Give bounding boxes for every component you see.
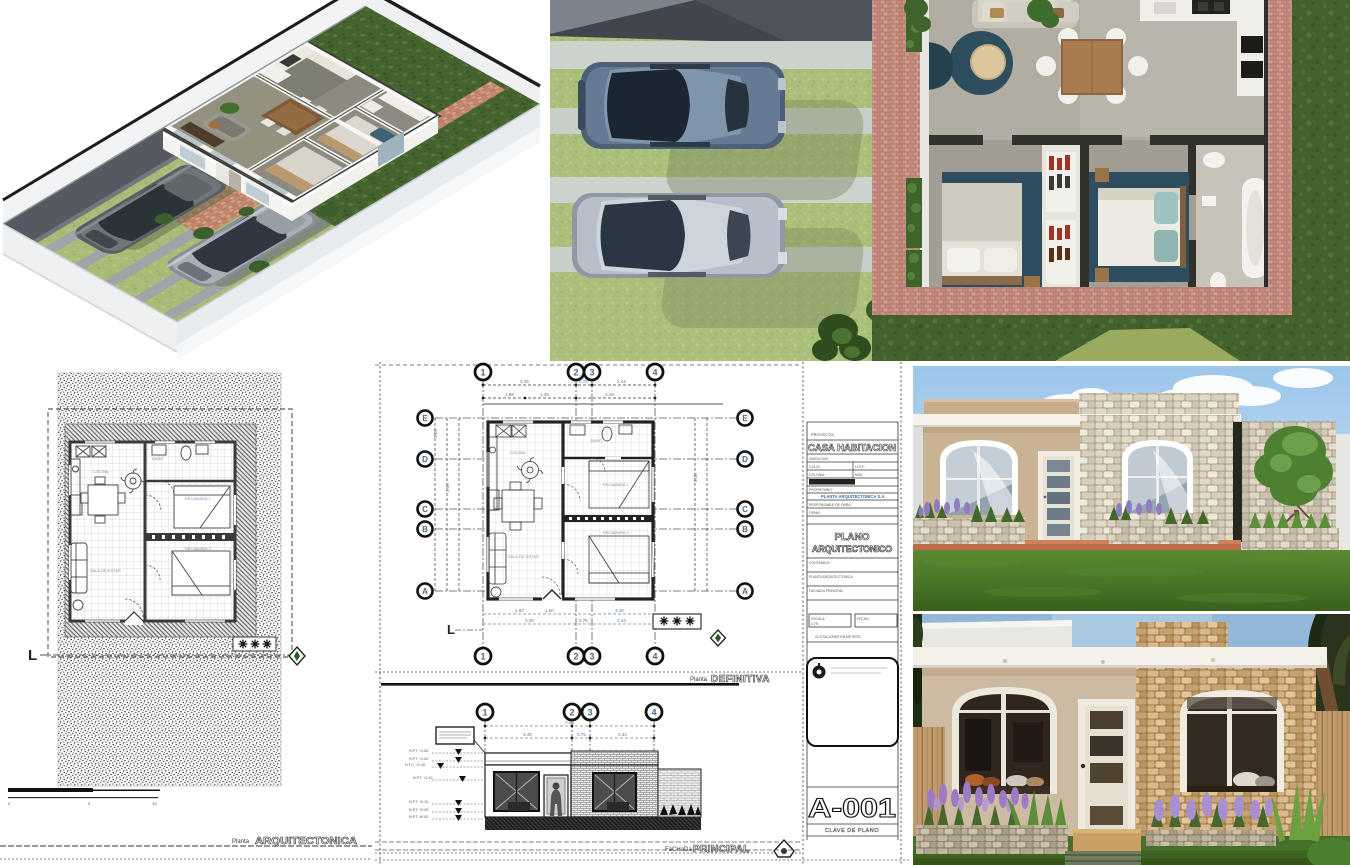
svg-text:L: L: [447, 622, 455, 637]
svg-text:SALA DE ESTAR: SALA DE ESTAR: [90, 568, 121, 573]
svg-text:3: 3: [587, 708, 592, 718]
svg-text:A: A: [742, 587, 748, 596]
svg-text:D: D: [422, 455, 428, 464]
svg-text:1.50: 1.50: [545, 608, 554, 613]
svg-text:A: A: [422, 587, 428, 596]
svg-text:N.T.C. +2.40: N.T.C. +2.40: [405, 763, 425, 767]
svg-text:3: 3: [589, 652, 594, 662]
svg-text:2: 2: [573, 368, 578, 378]
svg-text:1: 1: [480, 652, 485, 662]
svg-text:FACHADA PRINCIPAL: FACHADA PRINCIPAL: [809, 589, 844, 593]
svg-text:2: 2: [573, 652, 578, 662]
svg-text:BAÑO: BAÑO: [591, 438, 602, 443]
svg-text:Planta: Planta: [232, 839, 250, 845]
svg-text:N.P.T. +2.80: N.P.T. +2.80: [409, 749, 428, 753]
svg-text:CALLE:: CALLE:: [809, 465, 821, 469]
svg-text:1:75: 1:75: [811, 622, 818, 626]
svg-text:Planta: Planta: [690, 677, 708, 683]
svg-text:N.P.T. ±0.00: N.P.T. ±0.00: [409, 815, 428, 819]
svg-text:MZA:: MZA:: [855, 473, 863, 477]
svg-text:3.28: 3.28: [433, 429, 438, 438]
svg-text:UBICACION:: UBICACION:: [809, 457, 829, 461]
svg-text:1.93: 1.93: [515, 608, 524, 613]
svg-text:FECHA:: FECHA:: [857, 617, 869, 621]
svg-text:N.P.T. +0.05: N.P.T. +0.05: [409, 808, 428, 812]
svg-text:2.08: 2.08: [445, 483, 450, 492]
svg-text:LOTE:: LOTE:: [855, 465, 865, 469]
svg-text:C: C: [422, 505, 428, 514]
svg-text:RECAMARA 2: RECAMARA 2: [185, 546, 212, 551]
svg-text:RECAMARA 1: RECAMARA 1: [603, 482, 630, 487]
svg-text:RESPONSABLE DE OBRA:: RESPONSABLE DE OBRA:: [809, 503, 851, 507]
svg-text:B: B: [742, 525, 748, 534]
svg-text:1.38: 1.38: [540, 392, 549, 397]
svg-text:RECAMARA 2: RECAMARA 2: [603, 530, 630, 535]
svg-text:PLANTA ARQUITECTONICA: PLANTA ARQUITECTONICA: [809, 575, 854, 579]
svg-text:CASA HABITACION: CASA HABITACION: [808, 442, 896, 454]
svg-text:3.19: 3.19: [605, 392, 614, 397]
svg-text:10: 10: [152, 801, 157, 806]
svg-text:4: 4: [651, 708, 656, 718]
svg-text:4: 4: [652, 652, 657, 662]
svg-text:RECAMARA 1: RECAMARA 1: [185, 496, 212, 501]
svg-text:PROPIETARIO:: PROPIETARIO:: [809, 488, 833, 492]
svg-text:2.44: 2.44: [617, 618, 626, 623]
svg-text:4: 4: [652, 368, 657, 378]
svg-text:COLONIA:: COLONIA:: [809, 473, 825, 477]
svg-text:D: D: [742, 455, 748, 464]
svg-text:1: 1: [480, 368, 485, 378]
svg-text:CONTENIDO:: CONTENIDO:: [809, 561, 830, 565]
svg-text:PRINCIPAL: PRINCIPAL: [693, 844, 750, 855]
svg-text:2.44: 2.44: [617, 379, 626, 384]
svg-text:5: 5: [88, 801, 91, 806]
svg-text:PROYECTO:: PROYECTO:: [811, 432, 835, 437]
svg-text:PLANTA ARQUITECTONICA S.A.: PLANTA ARQUITECTONICA S.A.: [821, 494, 886, 499]
svg-text:0.75: 0.75: [577, 732, 586, 737]
svg-text:E: E: [742, 414, 748, 423]
svg-text:CLAVE DE PLANO: CLAVE DE PLANO: [825, 828, 879, 834]
svg-text:3.45: 3.45: [525, 618, 534, 623]
svg-text:B: B: [422, 525, 428, 534]
svg-text:N.P.T. +2.60: N.P.T. +2.60: [409, 757, 428, 761]
svg-text:E: E: [422, 414, 428, 423]
svg-text:ARQUITECTONICO: ARQUITECTONICO: [812, 544, 892, 554]
svg-text:0.75: 0.75: [579, 618, 588, 623]
svg-text:2: 2: [569, 708, 574, 718]
svg-text:ARQUITECTONICA: ARQUITECTONICA: [255, 836, 357, 847]
svg-text:ACOTACIONES EN METROS: ACOTACIONES EN METROS: [815, 635, 861, 639]
svg-text:N.P.T. +0.10: N.P.T. +0.10: [409, 800, 428, 804]
svg-text:1: 1: [482, 708, 487, 718]
svg-text:ESCALA:: ESCALA:: [811, 617, 825, 621]
svg-text:2.44: 2.44: [618, 732, 627, 737]
svg-text:PLANO: PLANO: [835, 532, 870, 543]
svg-text:1.98: 1.98: [505, 392, 514, 397]
svg-text:A-001: A-001: [808, 793, 896, 823]
svg-text:FIRMA:: FIRMA:: [809, 511, 821, 515]
svg-text:SALA DE ESTAR: SALA DE ESTAR: [508, 554, 539, 559]
svg-text:COCINA: COCINA: [510, 450, 526, 455]
svg-text:0.75: 0.75: [579, 379, 588, 384]
svg-text:5.30: 5.30: [693, 473, 698, 482]
svg-text:N.P.T. +2.10: N.P.T. +2.10: [413, 776, 432, 780]
svg-text:3.10: 3.10: [615, 608, 624, 613]
svg-text:3.45: 3.45: [523, 732, 532, 737]
svg-text:0: 0: [8, 801, 11, 806]
svg-text:C: C: [742, 505, 748, 514]
svg-text:BAÑO: BAÑO: [152, 456, 163, 461]
svg-text:L: L: [28, 647, 37, 664]
svg-text:COCINA: COCINA: [93, 469, 109, 474]
svg-text:3.45: 3.45: [520, 379, 529, 384]
svg-text:3: 3: [589, 368, 594, 378]
svg-text:7.00: 7.00: [565, 720, 574, 725]
